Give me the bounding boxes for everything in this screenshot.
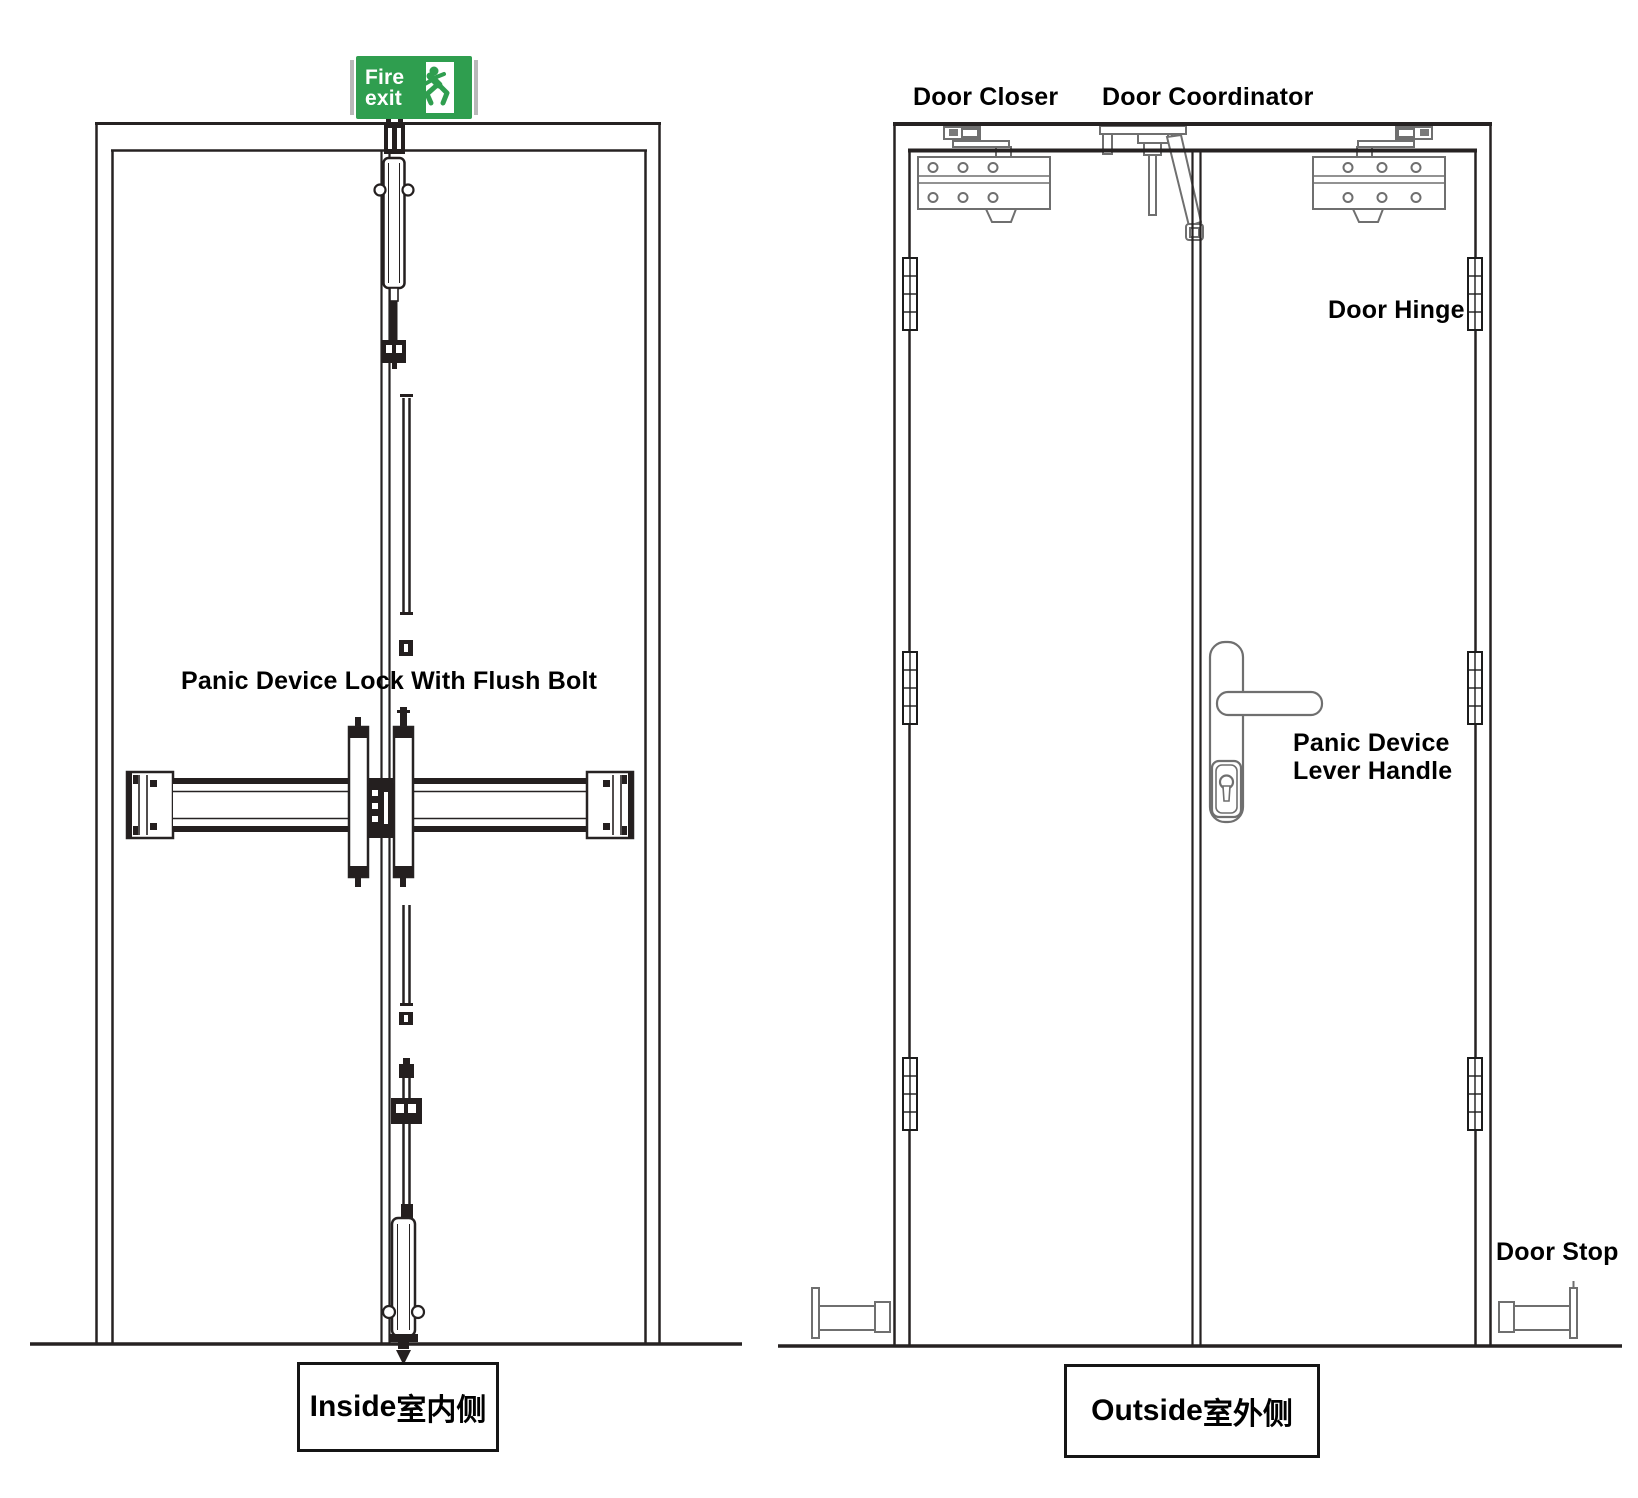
- inside-door-frame: [95, 122, 661, 1343]
- door-hinge-left-top: [903, 258, 917, 330]
- fire-exit-line2: exit: [365, 88, 404, 109]
- running-man-exit-icon: [408, 59, 458, 116]
- door-closer-left: [918, 157, 1050, 222]
- inside-view: [30, 111, 742, 1365]
- sign-mount-right: [474, 60, 478, 115]
- panic-lever-label-line2: Lever Handle: [1293, 757, 1452, 785]
- top-bolt-body: [384, 158, 405, 288]
- top-bolt-guide-bracket: [382, 340, 406, 363]
- bottom-bolt-body: [392, 1218, 415, 1336]
- outside-caption-zh: 室外侧: [1203, 1389, 1293, 1433]
- panic-lever-label-line1: Panic Device: [1293, 729, 1452, 757]
- outside-caption-en: Outside: [1091, 1394, 1203, 1428]
- panic-lock-label: Panic Device Lock With Flush Bolt: [181, 667, 597, 695]
- panic-bar-right-endcap: [587, 772, 633, 838]
- panic-lever-label: Panic Device Lever Handle: [1293, 729, 1452, 785]
- door-hinge-right-bottom: [1468, 1058, 1482, 1130]
- panic-bar-left-endcap: [127, 772, 173, 838]
- door-stop-label: Door Stop: [1496, 1238, 1619, 1266]
- door-coordinator-label: Door Coordinator: [1102, 83, 1314, 111]
- door-hinge-right-top: [1468, 258, 1482, 330]
- bottom-rod-guide-bracket: [391, 1098, 422, 1124]
- lever-handle-bar: [1217, 692, 1322, 715]
- door-stop-right: [1499, 1281, 1577, 1338]
- panic-bar-lock-case: [368, 783, 394, 838]
- door-coordinator: [1100, 126, 1203, 240]
- sign-mount-left: [350, 60, 354, 115]
- fire-exit-line1: Fire: [365, 67, 404, 88]
- fire-door-hardware-diagram: Fire exit Panic Device Lock With Flush B…: [0, 0, 1638, 1498]
- door-hinge-left-bottom: [903, 1058, 917, 1130]
- fire-exit-sign: Fire exit: [356, 56, 472, 119]
- top-connecting-rods: [399, 394, 413, 656]
- inside-caption-box: Inside室内侧: [297, 1362, 499, 1452]
- door-closer-right: [1313, 157, 1445, 222]
- door-hinge-label: Door Hinge: [1328, 296, 1465, 324]
- outside-caption-box: Outside室外侧: [1064, 1364, 1320, 1458]
- outside-view: [778, 122, 1622, 1346]
- inside-caption-en: Inside: [310, 1390, 397, 1424]
- door-hinge-right-middle: [1468, 652, 1482, 724]
- door-stop-left: [812, 1288, 890, 1338]
- bottom-connecting-rods: [391, 905, 422, 1219]
- top-bolt-latch: [384, 123, 405, 154]
- fire-exit-sign-text: Fire exit: [356, 67, 404, 109]
- inside-door-leaves-meeting-stile: [382, 150, 390, 1343]
- door-hinge-left-middle: [903, 652, 917, 724]
- door-closer-label: Door Closer: [913, 83, 1058, 111]
- panic-bar: [127, 707, 633, 887]
- inside-caption-zh: 室内侧: [396, 1385, 486, 1429]
- outside-door-leaves-meeting-stile: [1193, 150, 1201, 1345]
